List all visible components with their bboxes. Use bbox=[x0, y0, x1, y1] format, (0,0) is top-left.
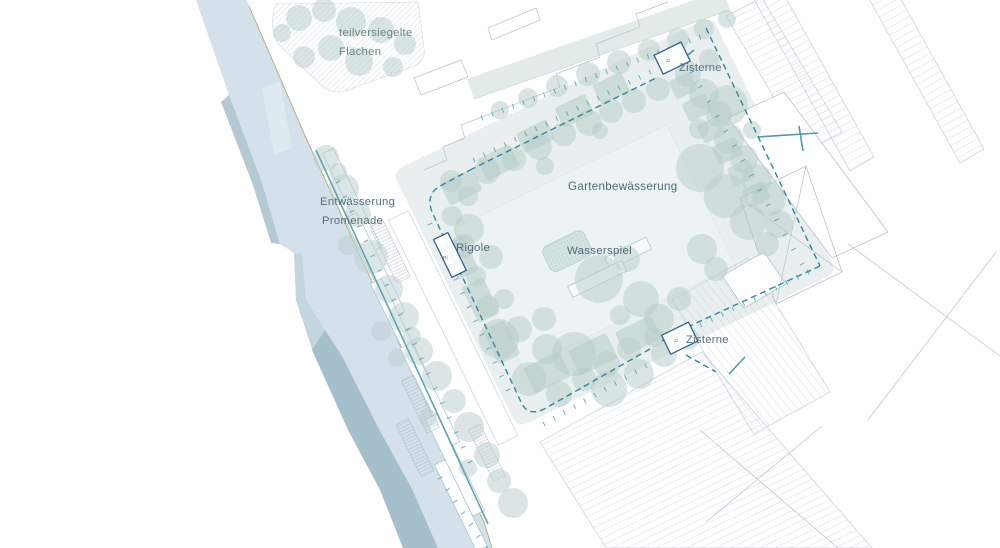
cistern-top-label: Zisterne bbox=[679, 62, 722, 74]
tree-canopy bbox=[440, 170, 462, 192]
tree-canopy bbox=[576, 62, 600, 86]
tree-canopy bbox=[610, 305, 630, 325]
tree-canopy bbox=[458, 186, 478, 206]
tree-canopy bbox=[498, 488, 528, 518]
tree-canopy bbox=[552, 332, 596, 376]
cistern-top-code-label: Zi bbox=[666, 58, 670, 63]
cistern-bottom-code-label: Zi bbox=[674, 338, 678, 343]
tree-canopy bbox=[667, 287, 691, 311]
tree-canopy bbox=[512, 362, 546, 396]
tree-canopy bbox=[422, 361, 452, 391]
infiltration-trench-label: Rigole bbox=[456, 242, 490, 254]
site-plan-drawing: teilversiegelteFlächenZisterneGartenbewä… bbox=[0, 0, 1000, 548]
tree-canopy bbox=[466, 266, 486, 286]
tree-canopy bbox=[607, 50, 631, 74]
tree-canopy bbox=[419, 409, 437, 427]
drainage-tick bbox=[543, 422, 545, 426]
tree-canopy bbox=[536, 157, 554, 175]
drainage-tick bbox=[563, 410, 565, 414]
tree-canopy bbox=[532, 307, 556, 331]
drainage-tick bbox=[553, 416, 555, 420]
tree-canopy bbox=[718, 10, 736, 28]
tree-canopy bbox=[474, 158, 500, 184]
tree-canopy bbox=[644, 304, 674, 334]
tree-canopy bbox=[708, 85, 748, 125]
garden-irrigation-label: Gartenbewässerung bbox=[568, 180, 678, 193]
site-plan-page: teilversiegelteFlächenZisterneGartenbewä… bbox=[0, 0, 1000, 548]
tree-canopy bbox=[442, 389, 466, 413]
tree-canopy bbox=[518, 88, 538, 108]
partially-sealed-line1-label: teilversiegelte bbox=[339, 27, 413, 39]
tree-canopy bbox=[388, 349, 406, 367]
tree-canopy bbox=[546, 381, 572, 407]
tree-canopy bbox=[403, 327, 421, 345]
tree-canopy bbox=[617, 337, 641, 361]
tree-canopy bbox=[526, 134, 552, 160]
tree-canopy bbox=[704, 257, 728, 281]
tree-canopy bbox=[624, 359, 654, 389]
tree-canopy bbox=[491, 101, 509, 119]
drainage-line1-label: Entwässerung bbox=[320, 196, 395, 208]
partially-sealed-line2-label: Flächen bbox=[339, 46, 381, 58]
rigole-code-label: Ri bbox=[443, 255, 448, 260]
tree-canopy bbox=[286, 5, 312, 31]
tree-canopy bbox=[273, 24, 291, 42]
tree-canopy bbox=[474, 442, 500, 468]
tree-canopy bbox=[477, 295, 499, 317]
building-edge-line bbox=[414, 60, 468, 95]
building-edge-line bbox=[488, 8, 540, 40]
building-edge-line bbox=[848, 244, 1000, 356]
drainage-line2-label: Promenade bbox=[322, 215, 383, 227]
tree-canopy bbox=[383, 57, 403, 77]
tree-canopy bbox=[329, 163, 347, 181]
tree-canopy bbox=[442, 206, 462, 226]
tree-canopy bbox=[371, 321, 391, 341]
tree-canopy bbox=[293, 46, 315, 68]
tree-canopy bbox=[694, 19, 714, 39]
tree-canopy bbox=[552, 122, 576, 146]
tree-canopy bbox=[730, 204, 766, 240]
drainage-tick bbox=[584, 399, 586, 403]
tree-canopy bbox=[592, 123, 608, 139]
tree-canopy bbox=[689, 119, 709, 139]
building-edge-line bbox=[868, 252, 996, 420]
drainage-tick bbox=[461, 446, 466, 448]
tree-canopy bbox=[599, 99, 623, 123]
building-roof-hatched bbox=[868, 0, 984, 163]
tree-canopy bbox=[502, 147, 526, 171]
tree-canopy bbox=[454, 412, 484, 442]
cistern-bottom-label: Zisterne bbox=[686, 334, 729, 346]
tree-canopy bbox=[591, 371, 627, 407]
water-feature-label: Wasserspiel bbox=[567, 245, 632, 257]
drainage-tick bbox=[573, 404, 575, 408]
